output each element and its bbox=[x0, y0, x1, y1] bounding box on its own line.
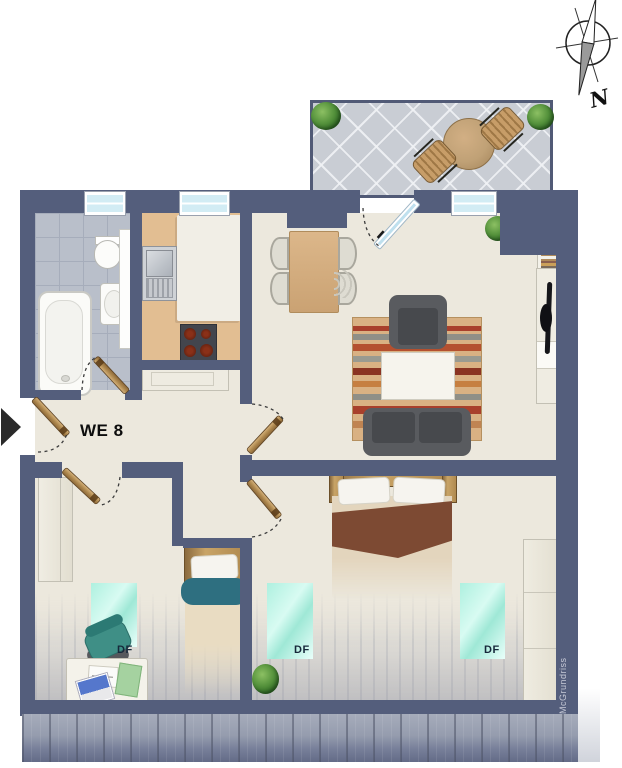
bathroom-door-swing bbox=[82, 358, 95, 390]
doors-overlay bbox=[0, 0, 622, 768]
terrace-glass-door bbox=[372, 198, 420, 250]
entry-door-swing bbox=[38, 434, 67, 452]
roof-window-label: DF bbox=[117, 644, 133, 656]
entry-door bbox=[31, 397, 70, 438]
compass: N bbox=[548, 0, 622, 115]
living-room-door bbox=[246, 415, 283, 454]
roof-window-label: DF bbox=[484, 644, 500, 656]
roof-window-label: DF bbox=[294, 644, 310, 656]
unit-label: WE 8 bbox=[80, 421, 124, 441]
compass-north-label: N bbox=[586, 84, 613, 114]
floor-plan: WE 8 DF DF DF McGrundriss N bbox=[0, 0, 622, 768]
kids-room-door-swing bbox=[101, 477, 120, 505]
watermark-text: McGrundriss bbox=[558, 650, 576, 714]
bedroom-door bbox=[246, 479, 282, 520]
kids-room-door bbox=[62, 467, 101, 504]
bathroom-door bbox=[93, 356, 129, 394]
bedroom-door-swing bbox=[252, 519, 281, 537]
